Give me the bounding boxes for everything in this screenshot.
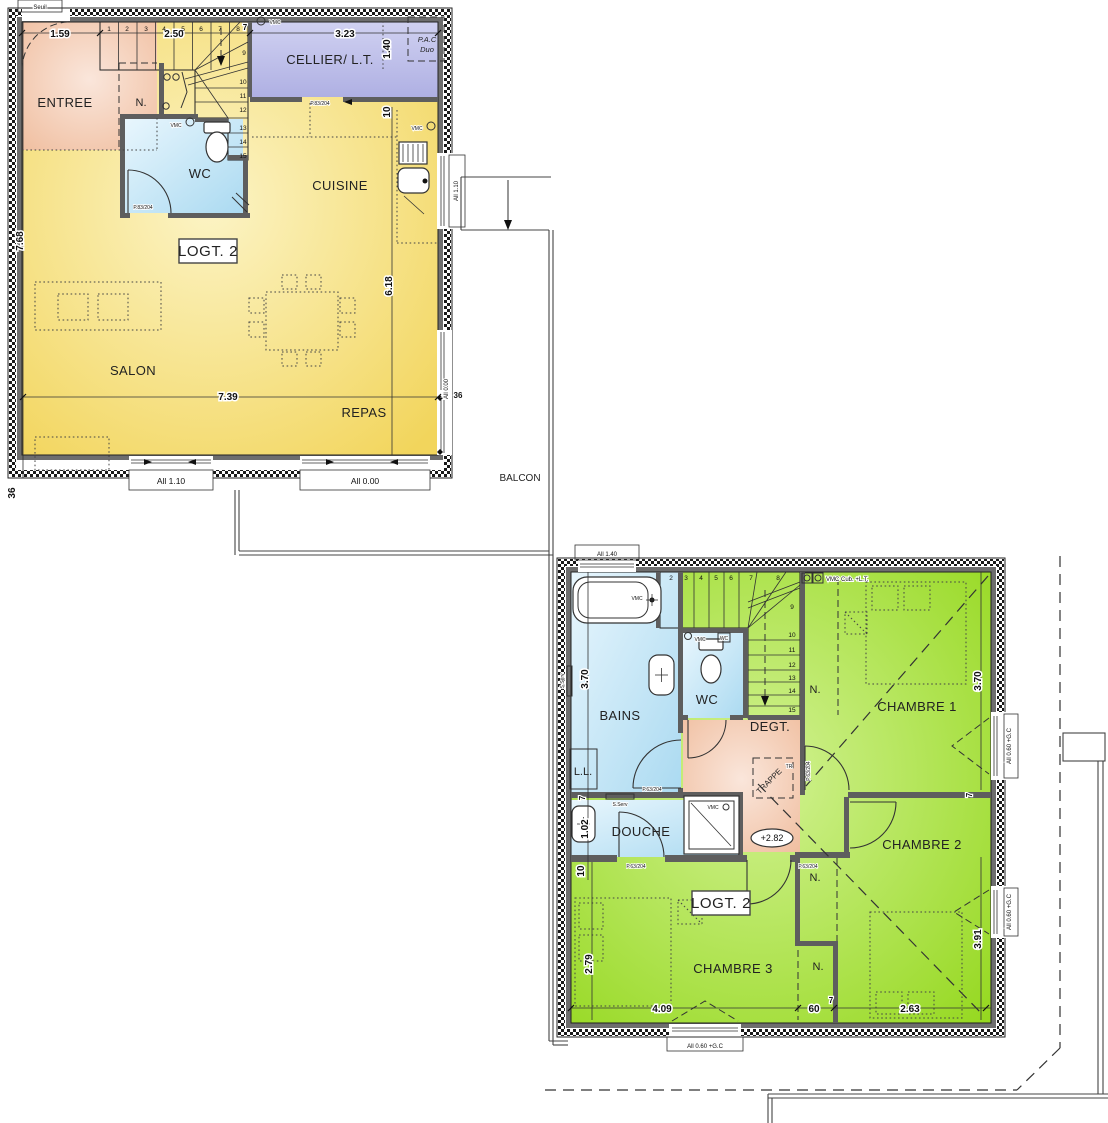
svg-text:LOGT. 2: LOGT. 2 [691, 895, 751, 912]
svg-text:5: 5 [181, 26, 185, 33]
door-label: P.83/204 [133, 205, 153, 211]
svg-text:+2.82: +2.82 [761, 833, 784, 843]
svg-text:4: 4 [699, 575, 703, 582]
svg-text:8: 8 [236, 26, 240, 33]
svg-text:1.40: 1.40 [382, 39, 393, 59]
room-label-ch3: CHAMBRE 3 [693, 961, 772, 976]
svg-text:36: 36 [454, 391, 463, 400]
vmc-label: VMC [170, 123, 182, 129]
svg-text:3.23: 3.23 [335, 29, 355, 40]
svg-text:4.09: 4.09 [652, 1004, 672, 1015]
exterior-arrow [504, 220, 512, 230]
svg-text:2.79: 2.79 [584, 954, 595, 974]
svg-text:7.39: 7.39 [218, 392, 238, 403]
door-label: P.63/204 [626, 864, 646, 870]
ll-label: L.L. [574, 766, 592, 778]
svg-text:1.02: 1.02 [580, 819, 591, 839]
window-south-1: All 1.10 [129, 456, 213, 490]
toilet [204, 122, 230, 162]
svg-text:3.91: 3.91 [973, 929, 984, 949]
svg-text:9: 9 [790, 604, 794, 611]
room-label-salon: SALON [110, 363, 156, 378]
svg-text:All 0.00: All 0.00 [444, 378, 450, 399]
room-label-wc2: WC [696, 692, 718, 707]
svg-text:10: 10 [382, 106, 393, 118]
room-label-wc: WC [189, 166, 211, 181]
room-label-douche: DOUCHE [612, 824, 671, 839]
wc-duct-label: WC [720, 636, 729, 642]
svg-text:11: 11 [789, 647, 796, 654]
floor1-plan: Seuil VMC P.A.C Duo VMC P.83/204 VMC [7, 0, 465, 499]
room-label-n3: N. [813, 961, 824, 973]
svg-text:1: 1 [107, 26, 111, 33]
svg-text:8: 8 [776, 575, 780, 582]
svg-text:6.18: 6.18 [384, 276, 395, 296]
room-label-cellier: CELLIER/ L.T. [286, 52, 374, 67]
svg-text:5: 5 [714, 575, 718, 582]
pac-label2: Duo [420, 45, 434, 54]
svg-text:3.70: 3.70 [580, 669, 591, 689]
level-marker: +2.82 [751, 829, 793, 847]
room-label-n: N. [136, 97, 147, 109]
svg-text:3: 3 [144, 26, 148, 33]
room-label-bains: BAINS [599, 708, 640, 723]
svg-text:13: 13 [788, 675, 796, 682]
svg-text:10: 10 [576, 865, 587, 877]
door-label: P.83/204 [310, 101, 330, 107]
svg-text:6: 6 [199, 26, 203, 33]
window-label: All 1.40 [597, 552, 618, 558]
window-label: All 0.60 +G.C [1007, 727, 1013, 764]
svg-text:7: 7 [749, 575, 753, 582]
window-label: All 1.10 [454, 180, 460, 201]
svg-text:1.59: 1.59 [50, 29, 70, 40]
svg-text:11: 11 [240, 93, 247, 100]
svg-text:4: 4 [162, 26, 166, 33]
pac-label: P.A.C [418, 35, 437, 44]
vmc-label: VMC [411, 126, 423, 132]
svg-text:6: 6 [729, 575, 733, 582]
svg-text:10: 10 [239, 79, 247, 86]
window-label: All 1.10 [157, 476, 186, 486]
logt-badge-floor1: LOGT. 2 [178, 239, 238, 263]
room-label-n1: N. [810, 684, 821, 696]
svg-text:7: 7 [578, 795, 587, 800]
vmc-label: VMC [631, 596, 643, 602]
svg-text:10: 10 [788, 632, 796, 639]
floorplan-drawing: Seuil VMC P.A.C Duo VMC P.83/204 VMC [0, 0, 1108, 1123]
bains-washbasin [649, 655, 674, 695]
room-label-cuisine: CUISINE [312, 178, 368, 193]
balcon-label: BALCON [499, 473, 540, 484]
svg-text:14: 14 [788, 688, 796, 695]
seuil-label: Seuil [33, 5, 46, 11]
svg-text:TR: TR [786, 764, 793, 770]
svg-text:15: 15 [788, 707, 796, 714]
svg-text:12: 12 [239, 107, 247, 114]
window-label: All 0.60 +G.C [1007, 893, 1013, 930]
svg-text:3: 3 [684, 575, 688, 582]
svg-text:S.Serv: S.Serv [612, 802, 628, 808]
svg-text:9: 9 [242, 50, 246, 57]
svg-text:S.Serv: S.Serv [560, 673, 566, 689]
vmc-label: VMC [269, 20, 281, 26]
svg-text:LOGT. 2: LOGT. 2 [178, 243, 238, 260]
bathtub [573, 577, 661, 623]
svg-text:2.63: 2.63 [900, 1004, 920, 1015]
toilet2 [699, 639, 723, 683]
svg-text:36: 36 [7, 487, 18, 499]
vmc-cub-label: VMC Cub. +L.T. [826, 577, 869, 583]
svg-text:13: 13 [239, 125, 247, 132]
door-label: P.63/204 [642, 787, 662, 793]
svg-text:12: 12 [788, 662, 796, 669]
window-south-2: All 0.00 [300, 456, 430, 490]
room-label-ch2: CHAMBRE 2 [882, 837, 961, 852]
logt-badge-floor2: LOGT. 2 [691, 891, 751, 915]
room-label-repas: REPAS [341, 405, 386, 420]
svg-text:7.68: 7.68 [15, 231, 26, 251]
vmc-label: VMC [707, 805, 719, 811]
svg-text:7: 7 [218, 26, 222, 33]
room-label-ch1: CHAMBRE 1 [877, 699, 956, 714]
svg-text:7: 7 [829, 996, 834, 1005]
window-label: All 0.00 [351, 476, 380, 486]
floorplan-sheet: Seuil VMC P.A.C Duo VMC P.83/204 VMC [0, 0, 1108, 1123]
svg-text:15: 15 [239, 153, 247, 160]
room-label-entree: ENTREE [37, 95, 92, 110]
vmc-label: VMC [694, 637, 706, 643]
window-label: All 0.60 +G.C [687, 1044, 724, 1050]
svg-text:3.70: 3.70 [973, 671, 984, 691]
door-label: P.63/204 [798, 864, 818, 870]
floor2-plan: VMC S.Serv L.L. VMC WC VMC Cub. +L.T. VM… [557, 545, 1018, 1051]
svg-text:14: 14 [239, 139, 247, 146]
door-label: P.63/204 [806, 761, 812, 781]
svg-text:2: 2 [669, 575, 673, 582]
svg-text:7: 7 [243, 23, 248, 32]
room-label-n2: N. [810, 872, 821, 884]
room-label-degt: DEGT. [750, 719, 790, 734]
svg-text:7: 7 [965, 792, 974, 797]
svg-text:2: 2 [125, 26, 129, 33]
svg-text:60: 60 [808, 1004, 820, 1015]
